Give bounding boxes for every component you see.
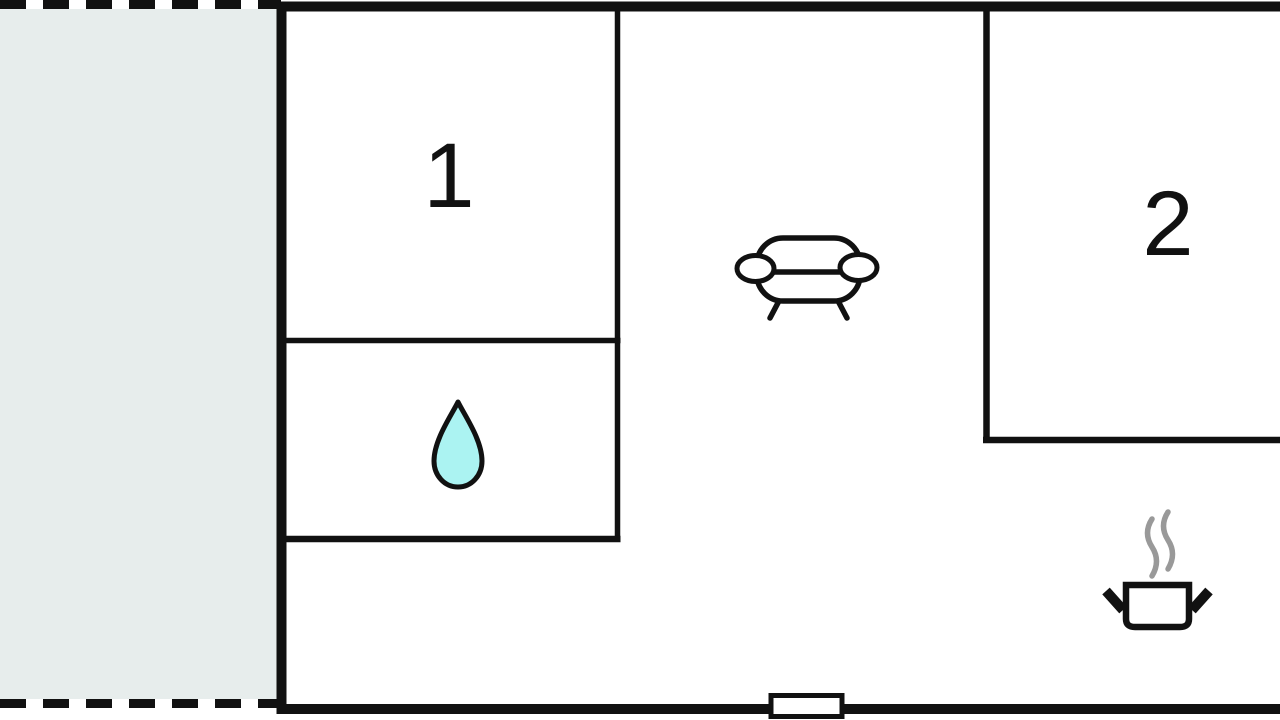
sofa-left-armrest (737, 256, 774, 282)
room1-label: 1 (423, 125, 474, 227)
floor-plan-svg: 1 2 (0, 0, 1280, 720)
sofa-right-armrest (840, 255, 877, 281)
pot-body (1126, 585, 1189, 627)
terrace-area (0, 9, 281, 699)
room2-label: 2 (1142, 173, 1193, 275)
door-opening (771, 696, 842, 717)
floor-plan: 1 2 (0, 0, 1280, 720)
